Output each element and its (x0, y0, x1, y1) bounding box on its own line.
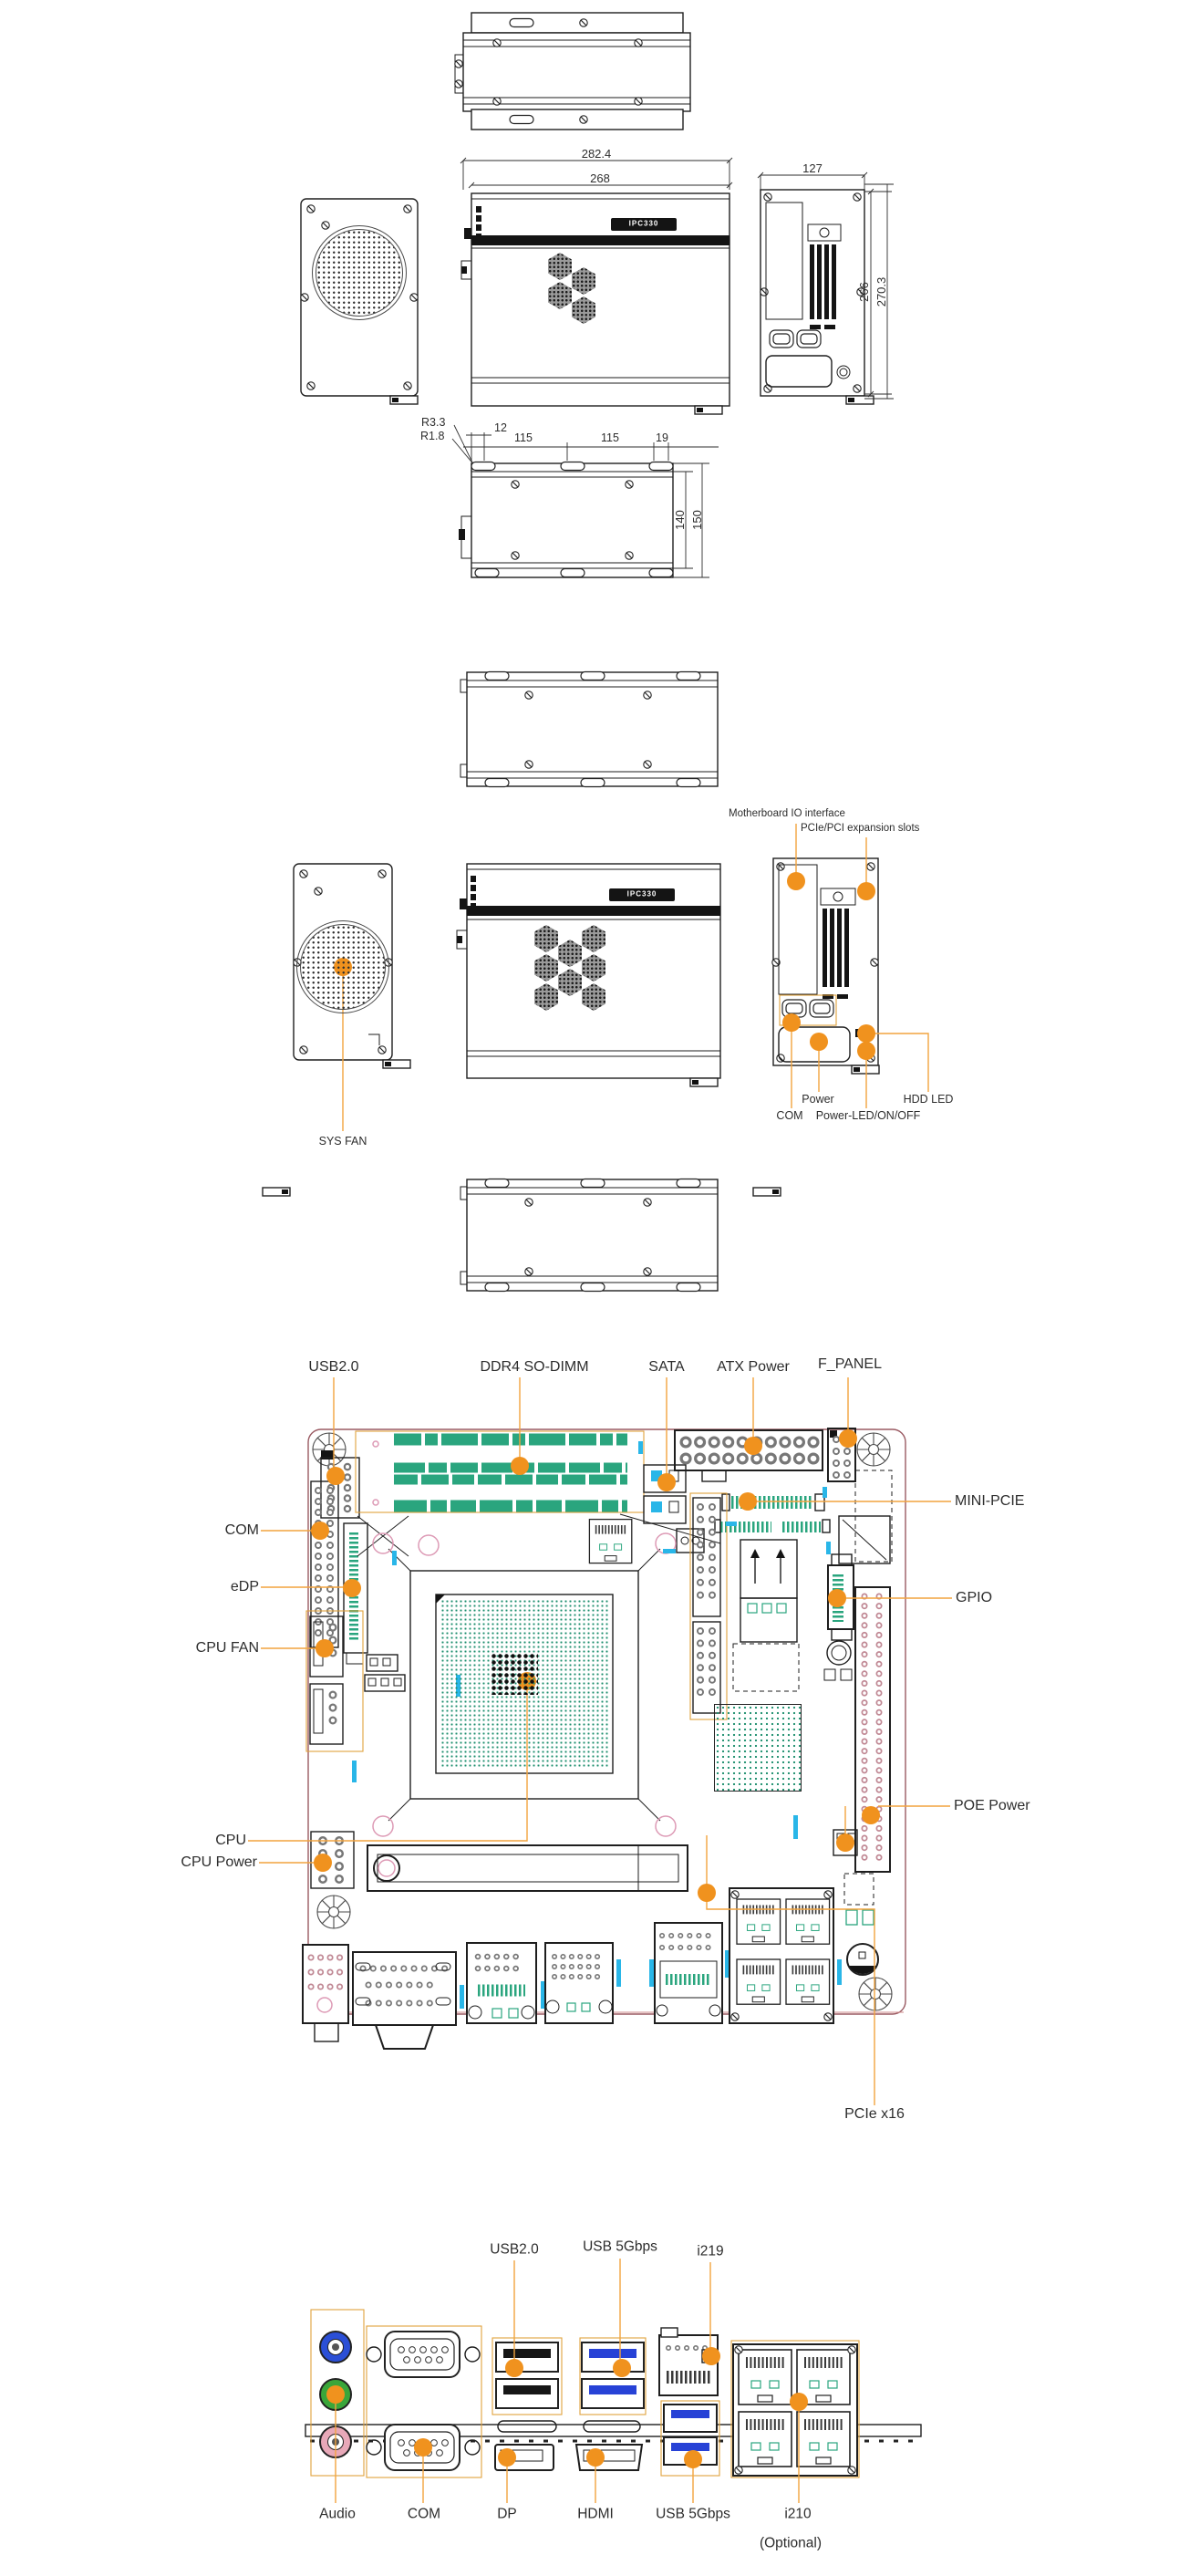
label-edp: eDP (231, 1579, 259, 1595)
label-mb-io: Motherboard IO interface (729, 808, 845, 820)
callout-dot-com-io (414, 2438, 432, 2457)
line-art (0, 0, 1190, 2576)
label-sys-fan: SYS FAN (319, 1136, 367, 1148)
callout-dot-expansion (857, 882, 875, 900)
label-power-led: Power-LED/ON/OFF (816, 1110, 921, 1123)
fan-grille-1 (312, 225, 407, 320)
dim-side-h-inner: 266 (858, 282, 871, 302)
label-minipcie: MINI-PCIE (955, 1493, 1024, 1510)
view-side-plain-2 (460, 1179, 718, 1292)
view-bottom-dims (452, 425, 719, 577)
rear-io-panel (305, 2259, 921, 2503)
label-com-board: COM (225, 1522, 259, 1539)
brand-badge-1: IPC330 (629, 221, 659, 229)
callout-dot-pcie16 (698, 1884, 716, 1902)
brand-badge-2: IPC330 (627, 891, 657, 899)
view-side-plain-1 (460, 672, 718, 787)
label-i219: i219 (697, 2243, 723, 2259)
label-com-io: COM (408, 2506, 440, 2521)
cpu-pin-block (491, 1653, 538, 1695)
label-pcie16: PCIe x16 (844, 2106, 905, 2123)
callout-dot-mb-io (787, 872, 805, 890)
dim-pitch-b: 115 (601, 432, 619, 445)
dim-r1: R3.3 (421, 417, 445, 430)
callout-dot-usb5g-top (613, 2359, 631, 2377)
technical-drawing-page: IPC330 IPC330 282.4 268 127 266 270.3 R3… (0, 0, 1190, 2576)
label-hdd-led: HDD LED (904, 1094, 954, 1106)
label-usb5g-bottom: USB 5Gbps (656, 2506, 730, 2521)
label-sata: SATA (648, 1359, 684, 1376)
label-usb20-board: USB2.0 (308, 1359, 358, 1376)
label-gpio: GPIO (956, 1590, 992, 1606)
callout-dot-poe (862, 1806, 880, 1824)
label-power: Power (802, 1094, 833, 1106)
callout-dot-hdmi (586, 2448, 605, 2467)
callout-dot-power-led (857, 1042, 875, 1060)
label-i210-note: (Optional) (760, 2535, 822, 2550)
label-com-chassis: COM (776, 1110, 802, 1123)
label-hdmi: HDMI (577, 2506, 614, 2521)
callout-dot-usb5g-bottom (684, 2450, 702, 2468)
fan-grille-2 (296, 920, 389, 1013)
callout-dot-minipcie (739, 1492, 757, 1511)
label-cpufan: CPU FAN (196, 1640, 259, 1657)
pch-chip (714, 1704, 802, 1792)
label-atx: ATX Power (717, 1359, 790, 1376)
dim-offset: 12 (494, 422, 507, 435)
callout-dot-fpanel (839, 1429, 857, 1448)
callout-dot-power (810, 1033, 828, 1051)
dim-r2: R1.8 (420, 431, 444, 443)
dim-front-outer: 282.4 (582, 148, 612, 161)
label-i210: i210 (784, 2506, 811, 2521)
callout-dot-usb20-io (505, 2359, 523, 2377)
label-dimm: DDR4 SO-DIMM (480, 1359, 588, 1376)
callout-dot-audio (326, 2385, 345, 2404)
label-usb5g-top: USB 5Gbps (583, 2238, 657, 2254)
label-cpu: CPU (215, 1833, 246, 1849)
view-top (455, 13, 690, 130)
callout-dot-i219 (702, 2347, 720, 2365)
callout-dot-poe-2 (836, 1833, 854, 1852)
callout-dot-sata (657, 1473, 676, 1491)
callout-dot-dimm (511, 1457, 529, 1475)
callout-dot-atx (744, 1437, 762, 1455)
callout-dot-cpufan (316, 1639, 334, 1657)
dim-side-width: 127 (802, 162, 823, 175)
callout-dot-gpio (828, 1589, 846, 1607)
label-cpupower: CPU Power (181, 1854, 257, 1871)
dim-bottom-outer: 150 (691, 510, 704, 530)
callout-dot-i210 (790, 2393, 808, 2411)
callout-dot-cpupower (314, 1854, 332, 1872)
label-audio: Audio (319, 2506, 356, 2521)
callout-dot-dp (498, 2448, 516, 2467)
callout-dot-hdd-led (857, 1024, 875, 1043)
dim-bottom-inner: 140 (674, 510, 687, 530)
dim-front-inner: 268 (590, 172, 610, 185)
label-usb20-io: USB2.0 (490, 2241, 538, 2257)
callout-dot-com-chassis (782, 1013, 801, 1032)
callout-dot-edp (343, 1579, 361, 1597)
callout-dot-com-board (311, 1522, 329, 1540)
dim-pitch-a: 115 (514, 432, 533, 445)
label-expansion: PCIe/PCI expansion slots (801, 823, 919, 835)
dim-edge: 19 (656, 432, 668, 445)
dim-side-h-outer: 270.3 (875, 277, 888, 307)
label-poe: POE Power (954, 1798, 1030, 1814)
callout-dot-usb20-board (326, 1467, 345, 1485)
label-dp: DP (497, 2506, 517, 2521)
label-fpanel: F_PANEL (818, 1356, 882, 1373)
